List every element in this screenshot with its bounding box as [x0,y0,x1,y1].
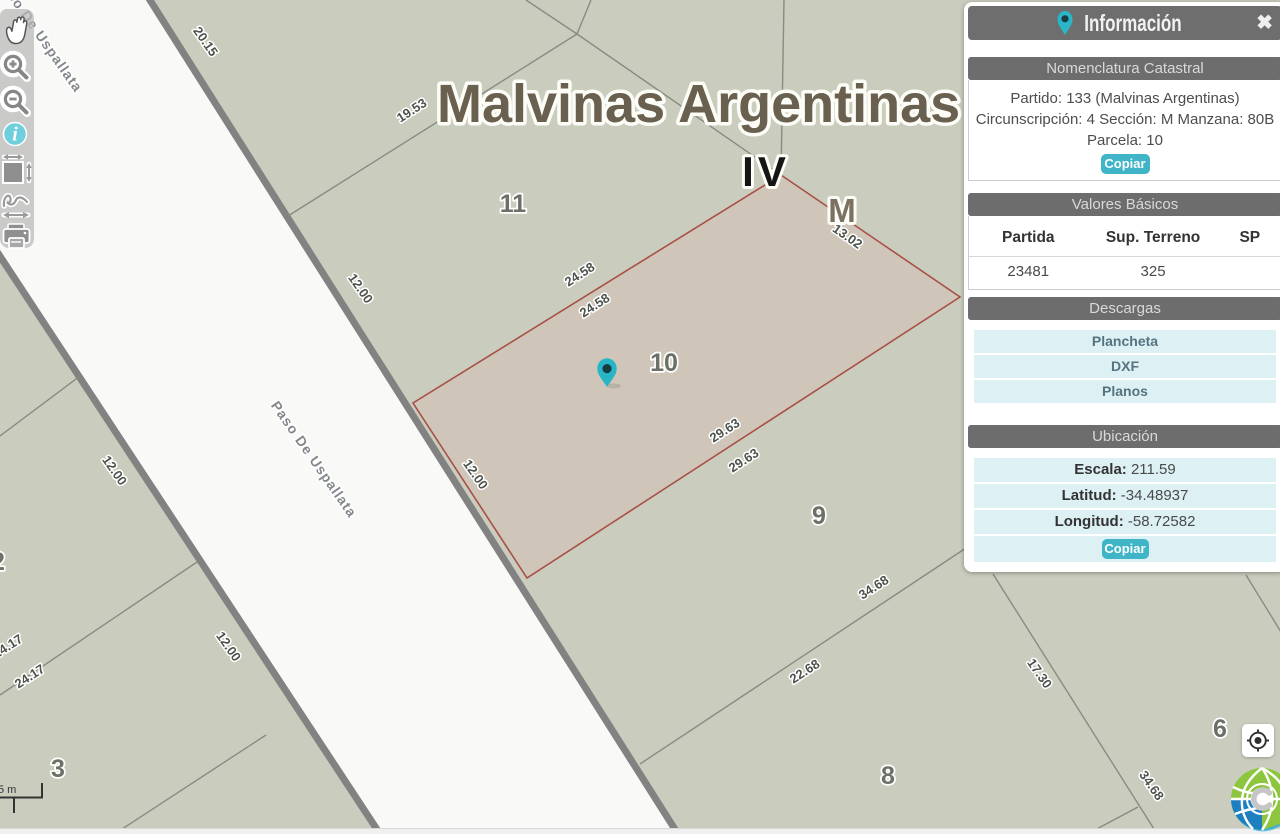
svg-text:IV: IV [742,148,790,195]
svg-text:3: 3 [51,755,65,783]
svg-text:9: 9 [812,502,826,530]
svg-text:5 m: 5 m [0,784,16,796]
svg-text:10: 10 [650,349,678,377]
svg-text:6: 6 [1213,715,1227,743]
svg-text:Malvinas Argentinas: Malvinas Argentinas [437,74,960,134]
svg-text:11: 11 [500,190,527,218]
svg-text:i: i [12,124,18,146]
svg-text:2: 2 [0,548,5,576]
svg-text:8: 8 [881,762,895,790]
